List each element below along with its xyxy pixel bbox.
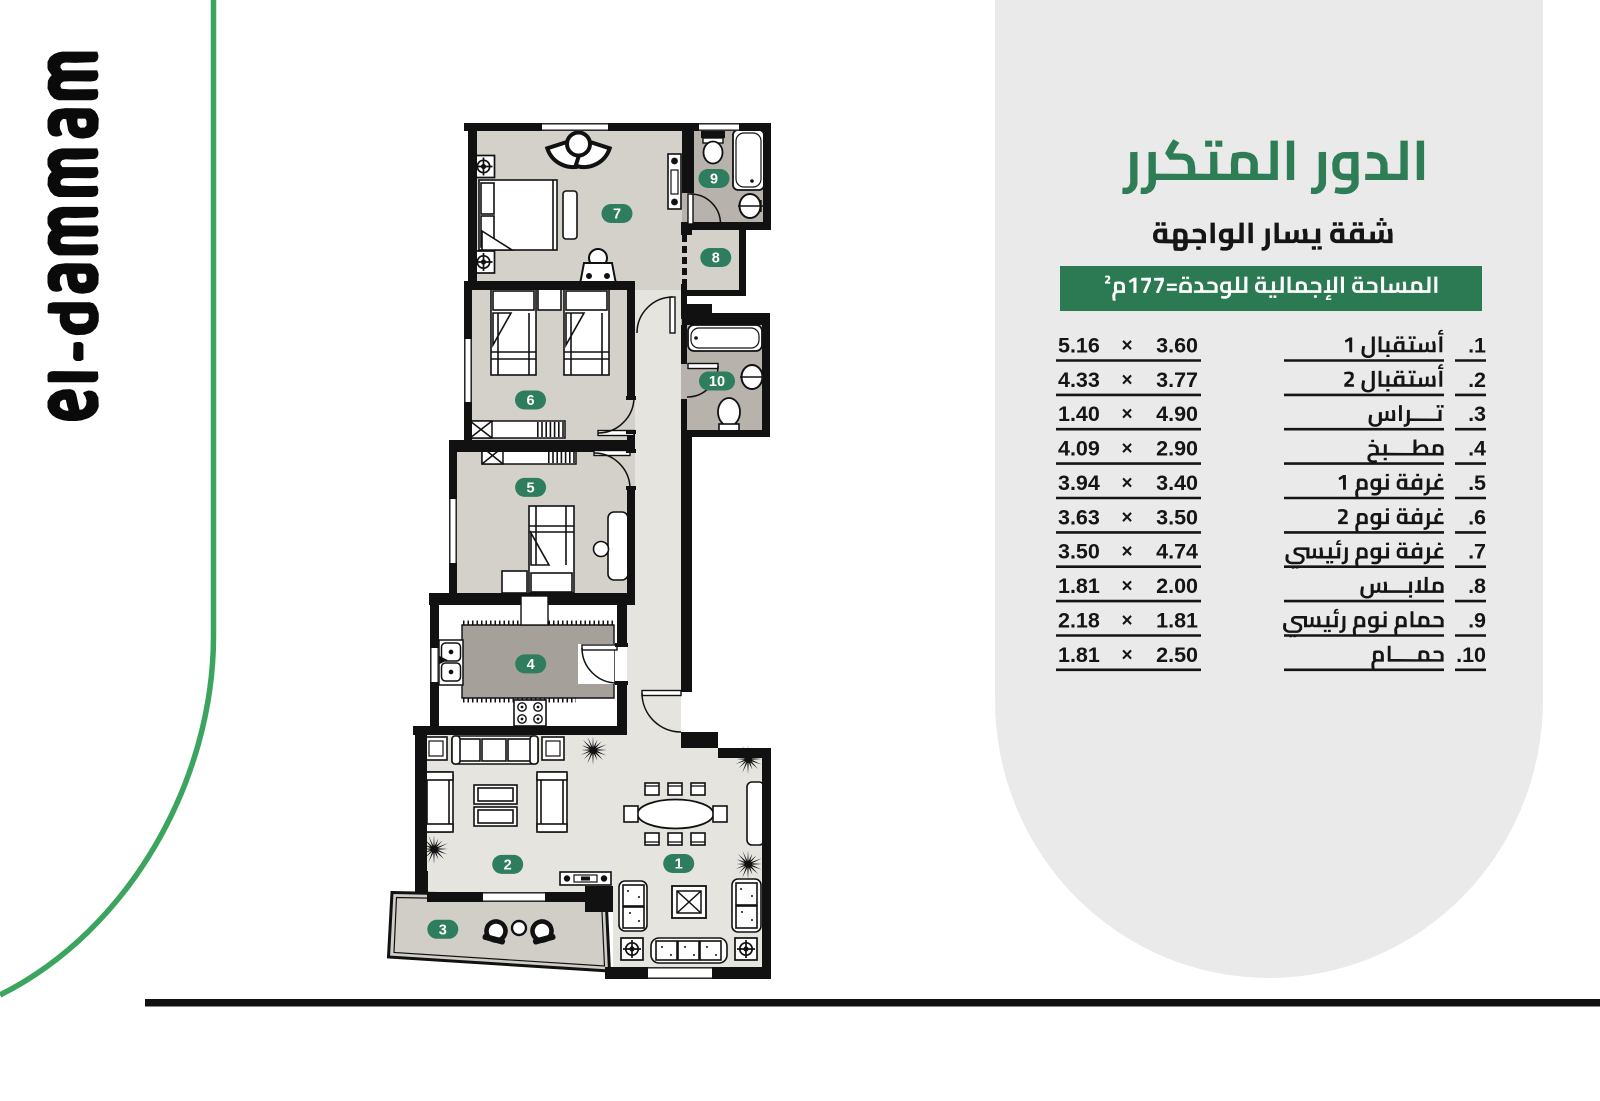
svg-text:1.81: 1.81 xyxy=(1156,609,1198,633)
svg-text:10: 10 xyxy=(709,374,725,390)
svg-text:3.77: 3.77 xyxy=(1156,368,1198,392)
svg-text:3: 3 xyxy=(439,922,447,938)
svg-text:.3: .3 xyxy=(1468,402,1486,426)
svg-text:8: 8 xyxy=(712,251,720,267)
svg-text:2.50: 2.50 xyxy=(1156,643,1198,667)
svg-text:2.90: 2.90 xyxy=(1156,437,1198,461)
svg-text:1.40: 1.40 xyxy=(1058,402,1100,426)
svg-text:2.00: 2.00 xyxy=(1156,574,1198,598)
svg-text:.10: .10 xyxy=(1456,643,1486,667)
svg-text:.1: .1 xyxy=(1468,334,1486,358)
svg-text:×: × xyxy=(1121,576,1132,597)
svg-text:4.09: 4.09 xyxy=(1058,437,1100,461)
svg-text:9: 9 xyxy=(710,172,718,188)
svg-text:5: 5 xyxy=(527,480,535,496)
svg-text:4.74: 4.74 xyxy=(1156,540,1198,564)
svg-text:3.94: 3.94 xyxy=(1058,471,1100,495)
svg-text:.8: .8 xyxy=(1468,574,1486,598)
svg-text:×: × xyxy=(1121,370,1132,391)
svg-text:×: × xyxy=(1121,507,1132,528)
svg-text:.4: .4 xyxy=(1468,437,1486,461)
svg-text:1.81: 1.81 xyxy=(1058,643,1100,667)
svg-text:4: 4 xyxy=(527,657,535,673)
svg-text:4.33: 4.33 xyxy=(1058,368,1100,392)
svg-text:×: × xyxy=(1121,473,1132,494)
svg-text:3.50: 3.50 xyxy=(1156,505,1198,529)
svg-text:.5: .5 xyxy=(1468,471,1486,495)
svg-text:5.16: 5.16 xyxy=(1058,334,1100,358)
svg-text:3.50: 3.50 xyxy=(1058,540,1100,564)
svg-text:.6: .6 xyxy=(1468,505,1486,529)
svg-text:.2: .2 xyxy=(1468,368,1486,392)
svg-text:3.40: 3.40 xyxy=(1156,471,1198,495)
svg-text:7: 7 xyxy=(613,207,621,223)
svg-text:.9: .9 xyxy=(1468,609,1486,633)
svg-text:1.81: 1.81 xyxy=(1058,574,1100,598)
svg-text:×: × xyxy=(1121,439,1132,460)
svg-text:6: 6 xyxy=(526,393,534,409)
svg-text:4.90: 4.90 xyxy=(1156,402,1198,426)
svg-text:×: × xyxy=(1121,645,1132,666)
svg-text:2: 2 xyxy=(504,857,512,873)
svg-text:3.63: 3.63 xyxy=(1058,505,1100,529)
svg-text:1: 1 xyxy=(675,857,683,873)
svg-text:×: × xyxy=(1121,336,1132,357)
svg-text:×: × xyxy=(1121,611,1132,632)
svg-text:×: × xyxy=(1121,404,1132,425)
svg-text:.7: .7 xyxy=(1468,540,1486,564)
svg-text:3.60: 3.60 xyxy=(1156,334,1198,358)
svg-text:×: × xyxy=(1121,542,1132,563)
svg-text:2.18: 2.18 xyxy=(1058,609,1100,633)
